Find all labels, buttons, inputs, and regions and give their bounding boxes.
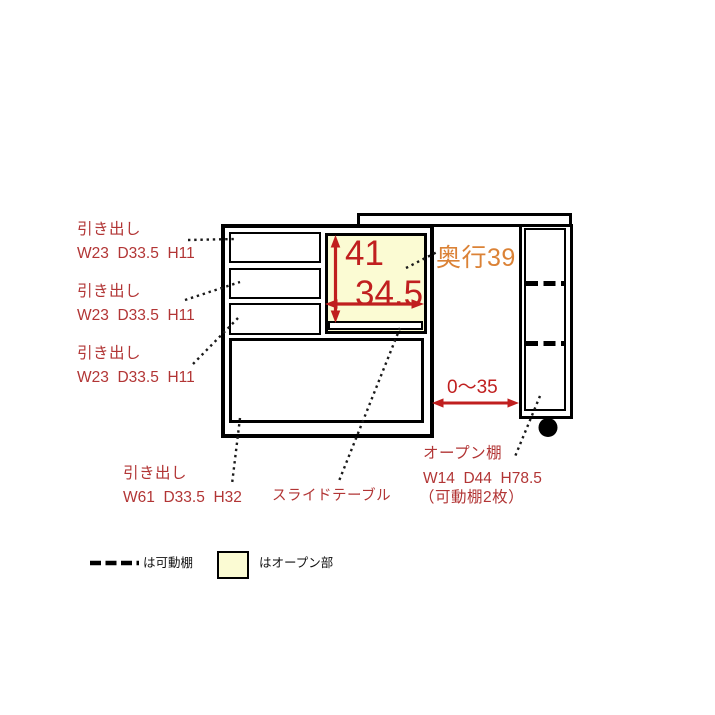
slide-table (328, 321, 423, 330)
open-section-width-value: 34.5 (355, 276, 423, 311)
gap-value: 0～35 (447, 378, 498, 397)
gap-dimension-arrow (432, 398, 519, 407)
furniture-dimension-diagram: 引き出し W23 D33.5 H11 引き出し W23 D33.5 H11 引き… (0, 0, 715, 715)
drawer-3-label: 引き出し (77, 345, 141, 362)
legend-open-section-label: はオープン部 (259, 557, 333, 570)
drawer-2-dimensions: W23 D33.5 H11 (77, 307, 195, 324)
caster-wheel-icon (539, 418, 558, 437)
legend-movable-shelf-label: は可動棚 (143, 557, 193, 570)
legend-open-section-swatch (217, 551, 249, 579)
drawer-2-label: 引き出し (77, 283, 141, 300)
drawer-1-label: 引き出し (77, 221, 141, 238)
drawer-1 (229, 232, 321, 263)
drawer-3-dimensions: W23 D33.5 H11 (77, 369, 195, 386)
large-drawer-dimensions: W61 D33.5 H32 (123, 489, 242, 506)
large-drawer-label: 引き出し (123, 465, 187, 482)
open-shelf-dimensions: W14 D44 H78.5 (423, 470, 542, 487)
drawer-2 (229, 268, 321, 299)
drawer-1-dimensions: W23 D33.5 H11 (77, 245, 195, 262)
depth-label: 奥行39 (436, 246, 516, 271)
drawer-3 (229, 303, 321, 335)
large-drawer (229, 338, 424, 423)
open-shelf-label: オープン棚 (423, 445, 502, 462)
open-shelf-interior (524, 228, 566, 411)
open-section-height-value: 41 (345, 236, 384, 271)
open-shelf-note: （可動棚2枚） (419, 489, 524, 506)
slide-table-label: スライドテーブル (272, 488, 391, 505)
